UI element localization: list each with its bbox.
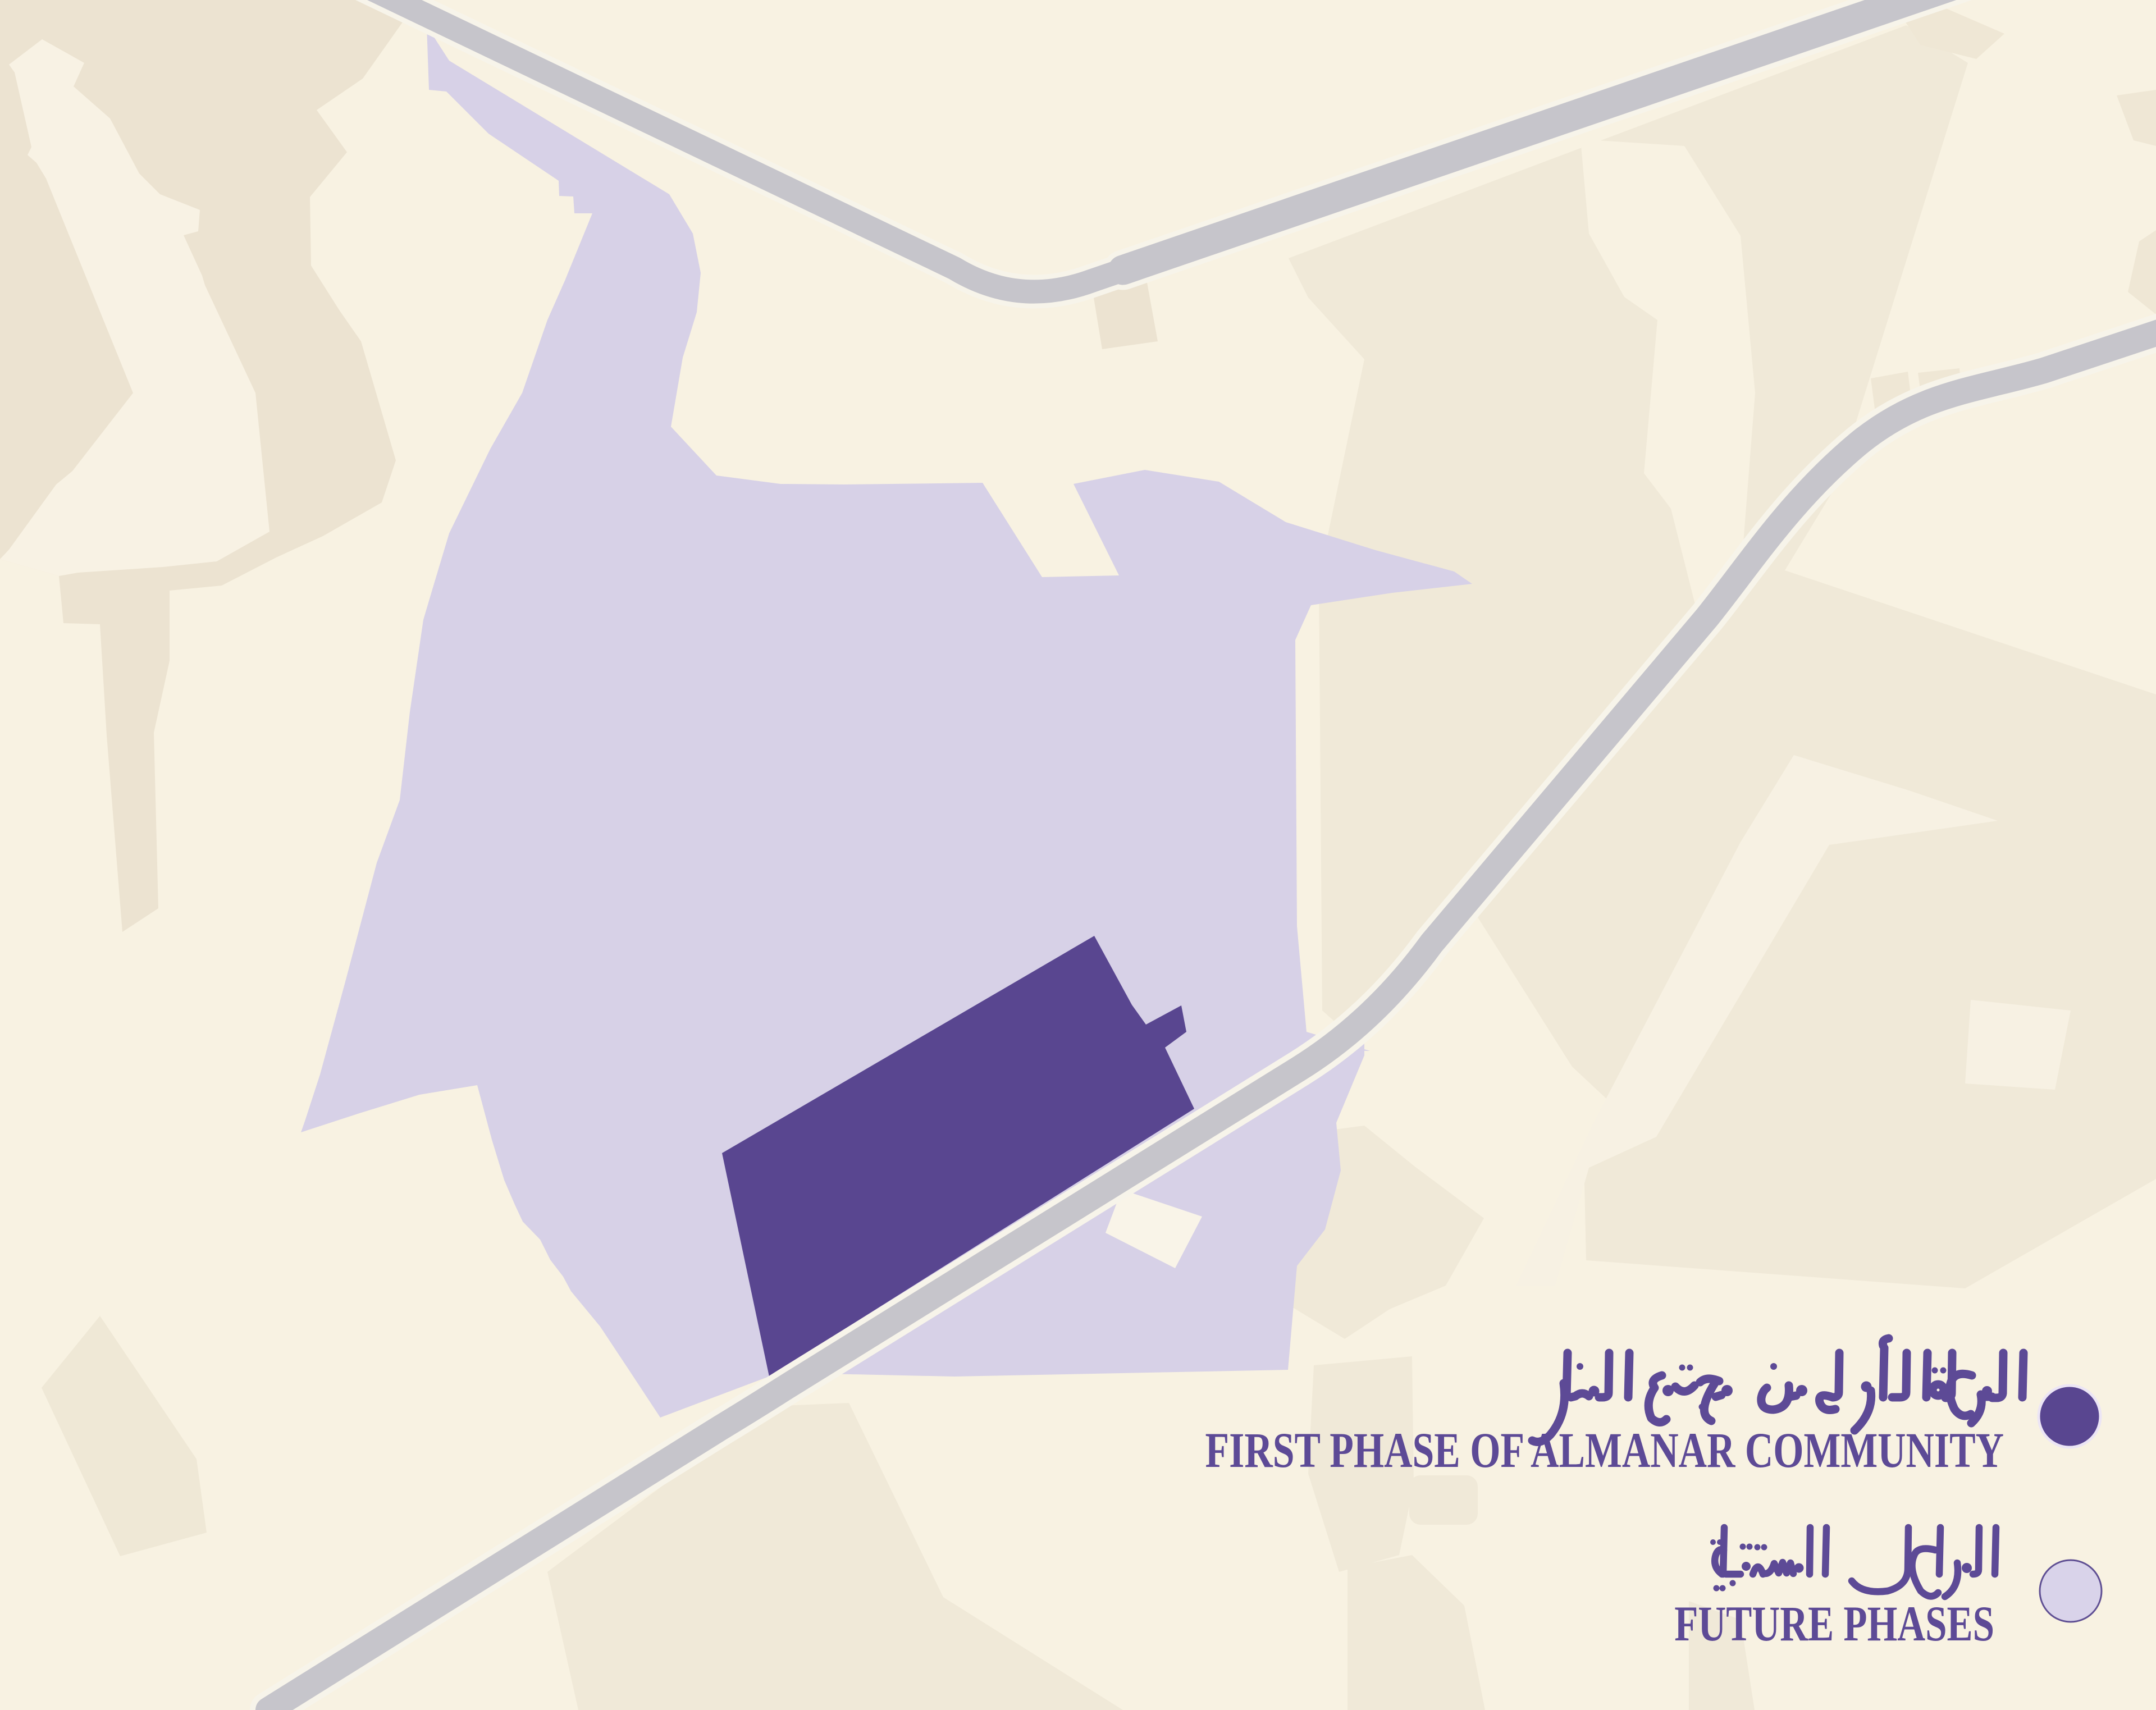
svg-text:FUTURE PHASES: FUTURE PHASES [1674,1597,1994,1652]
svg-text:FIRST PHASE OF ALMANAR COMMUNI: FIRST PHASE OF ALMANAR COMMUNITY [1205,1423,2004,1478]
